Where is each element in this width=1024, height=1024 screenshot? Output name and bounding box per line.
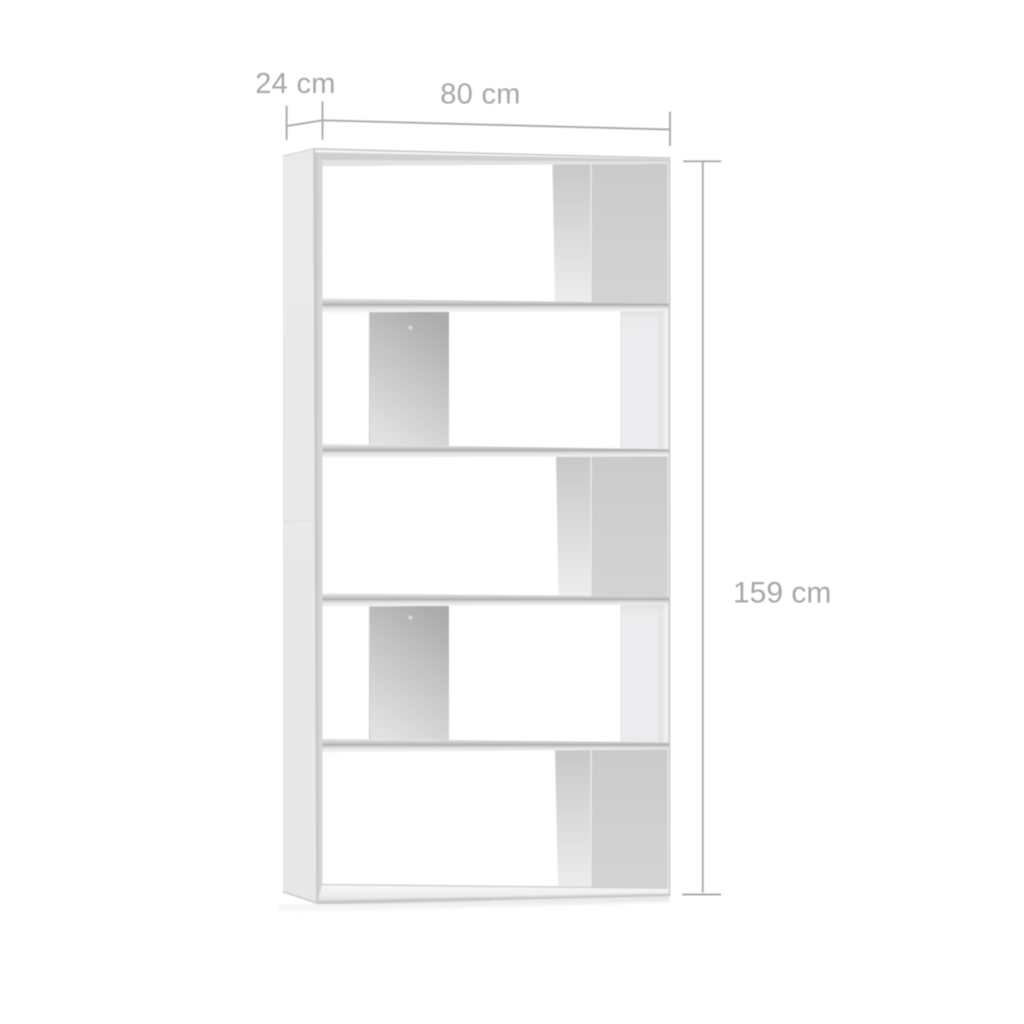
svg-text:80 cm: 80 cm — [440, 79, 520, 111]
svg-text:24 cm: 24 cm — [255, 68, 335, 100]
svg-text:159 cm: 159 cm — [733, 577, 831, 610]
